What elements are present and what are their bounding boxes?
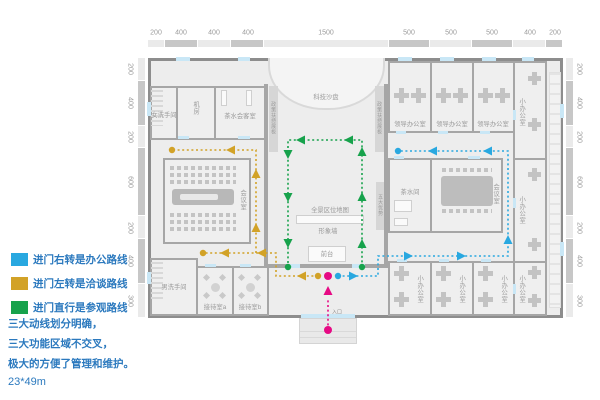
ruler-segment [389,40,430,47]
dimensions-label: 23*49m [8,376,46,388]
desk-icon [436,292,451,307]
door-marker [513,198,516,208]
door-marker [480,131,490,134]
tea-sink [394,218,408,226]
room-small-office-1-label: 小办公室 [417,275,423,303]
legend-label-office: 进门右转是办公路线 [33,252,128,267]
hall-left-wall [264,84,268,268]
door-marker [397,259,407,262]
room-tea-reception-label: 茶水会客室 [224,113,256,119]
ruler-value: 400 [576,256,584,268]
desk-icon [394,266,409,281]
ruler-value: 200 [150,28,162,36]
ruler-value: 200 [576,222,584,234]
ruler-segment [148,40,164,47]
ruler-segment [566,284,573,317]
ruler-segment [546,40,562,47]
desk-icon [453,88,468,103]
ruler-segment [231,40,263,47]
entrance-vestibule [299,318,357,344]
ruler-segment [566,148,573,215]
window-marker [176,57,190,61]
ruler-segment [138,239,145,283]
window-marker [398,57,412,61]
desk-icon [528,266,541,279]
window-marker [560,104,564,118]
ruler-value: 300 [127,295,135,307]
wc-stalls [151,90,163,126]
desk-icon [436,88,451,103]
door-marker [513,284,516,294]
door-marker [438,131,448,134]
room-reception-b-label: 接待室b [239,304,261,310]
ruler-value: 600 [576,176,584,188]
ruler-value: 500 [445,28,457,36]
ruler-segment [566,126,573,148]
policy-board-left-label: 政策扶持展板 [271,102,276,135]
window-marker [560,242,564,256]
window-marker [482,57,496,61]
room-small-office-3-label: 小办公室 [501,275,507,303]
ruler-segment [430,40,471,47]
desk-icon [478,292,493,307]
room-small-office-col-2-label: 小办公室 [519,196,525,224]
ruler-segment [566,239,573,283]
wc-stalls [151,262,163,302]
desk-icon [436,266,451,281]
desk-icon [528,118,541,131]
desk-icon [394,292,409,307]
door-marker [205,264,216,267]
room-leader-office-2-label: 领导办公室 [436,121,468,127]
chair-row [442,168,492,172]
ruler-value: 400 [127,97,135,109]
desk-icon [495,88,510,103]
desk-icon [394,88,409,103]
door-marker [439,259,449,262]
door-marker [513,110,516,120]
ruler-segment [264,40,388,47]
hall-bottom-wall [264,264,388,268]
chair-row [170,180,236,184]
window-marker [147,102,151,116]
ruler-value: 200 [576,131,584,143]
ruler-value: 600 [127,176,135,188]
ruler-value: 400 [576,97,584,109]
ruler-segment [566,216,573,238]
legend-swatch-office [11,253,28,266]
desk-icon [411,88,426,103]
door-marker [468,156,480,159]
reception-table [211,283,220,292]
ruler-segment [513,40,545,47]
ruler-segment [138,148,145,215]
note-line-1: 三大动线划分明确， [8,316,103,331]
ruler-segment [138,216,145,238]
note-line-3: 极大的方便了管理和维护。 [8,356,134,371]
ruler-value: 400 [209,28,221,36]
window-marker [440,57,454,61]
door-marker [352,264,365,268]
ruler-segment [138,58,145,80]
door-marker [238,136,250,139]
legend-swatch-tour [11,301,28,314]
tea-counter [394,200,412,212]
room-small-office-col-1-label: 小办公室 [519,98,525,126]
ruler-value: 500 [487,28,499,36]
door-marker [396,131,406,134]
note-line-2: 三大功能区域不交叉， [8,336,113,351]
room-small-office-col-3-label: 小办公室 [519,275,525,303]
ruler-value: 500 [404,28,416,36]
chair-row [170,220,236,224]
ruler-value: 1500 [319,28,335,36]
ruler-value: 200 [127,222,135,234]
podium-table [180,194,218,200]
chair-row [442,209,492,213]
desk-icon [528,294,541,307]
ruler-segment [198,40,230,47]
room-leader-office-1-label: 领导办公室 [394,121,426,127]
desk-icon [478,88,493,103]
door-marker [240,264,251,267]
legend-label-negotiation: 进门左转是洽谈路线 [33,276,128,291]
ruler-value: 400 [175,28,187,36]
ruler-value: 200 [127,63,135,75]
location-map-label: 全景区位地图 [311,207,349,213]
room-reception-a-label: 接待室a [204,304,226,310]
desk-icon [528,72,541,85]
ruler-segment [566,81,573,125]
door-marker [287,264,300,268]
room-small-office-2-label: 小办公室 [459,275,465,303]
chair-row [170,173,236,177]
policy-board-right-label: 政策扶持展板 [377,102,382,135]
floor-plan-canvas: 2004004004001500500500500400200 20040020… [0,0,600,400]
ruler-value: 400 [524,28,536,36]
chair-row [170,166,236,170]
top-dimension-ruler: 2004004004001500500500500400200 [148,26,563,50]
room-leader-office-3-label: 领导办公室 [477,121,509,127]
ruler-value: 200 [127,131,135,143]
ruler-segment [138,126,145,148]
left-dimension-ruler: 200400200600200400300 [126,58,146,318]
window-marker [238,57,250,61]
desk-icon [478,266,493,281]
chair-row [170,227,236,231]
ruler-value: 200 [549,28,561,36]
door-marker [178,136,189,139]
room-machine-label: 机房 [193,101,199,115]
advantages-label: 五大优势 [378,194,383,216]
ruler-value: 300 [576,295,584,307]
image-wall-label: 形象墙 [319,228,338,234]
ruler-value: 400 [127,256,135,268]
sofa [221,90,227,106]
ruler-segment [138,284,145,317]
legend-swatch-negotiation [11,277,28,290]
vestibule-step [300,337,356,338]
sofa [246,90,252,106]
ruler-segment [138,81,145,125]
reception-table [246,283,255,292]
vestibule-step [300,331,356,332]
ruler-value: 200 [576,63,584,75]
chair-row [170,213,236,217]
entrance-label: 入口 [332,310,342,315]
door-marker [394,156,404,159]
location-map-wall [296,215,364,224]
right-dimension-ruler: 200400200600200400300 [565,58,585,318]
ruler-value: 400 [242,28,254,36]
room-meeting-label: 会议室 [493,184,499,205]
desk-icon [528,168,541,181]
room-men-wc-label: 男洗手间 [161,284,186,290]
room-lecture-label: 会议室 [240,190,246,211]
room-tea-room-label: 茶水间 [401,189,420,195]
ruler-segment [472,40,513,47]
conference-table [441,176,493,206]
window-marker [147,272,151,284]
ruler-segment [566,58,573,80]
sand-table-label: 科技沙盘 [313,94,338,100]
legend-label-tour: 进门直行是参观路线 [33,300,128,315]
room-women-wc-label: 女洗手间 [151,112,176,118]
desk-icon [528,238,541,251]
window-marker [522,57,534,61]
front-desk-label: 前台 [321,251,334,257]
door-marker [481,259,491,262]
ruler-segment [165,40,197,47]
